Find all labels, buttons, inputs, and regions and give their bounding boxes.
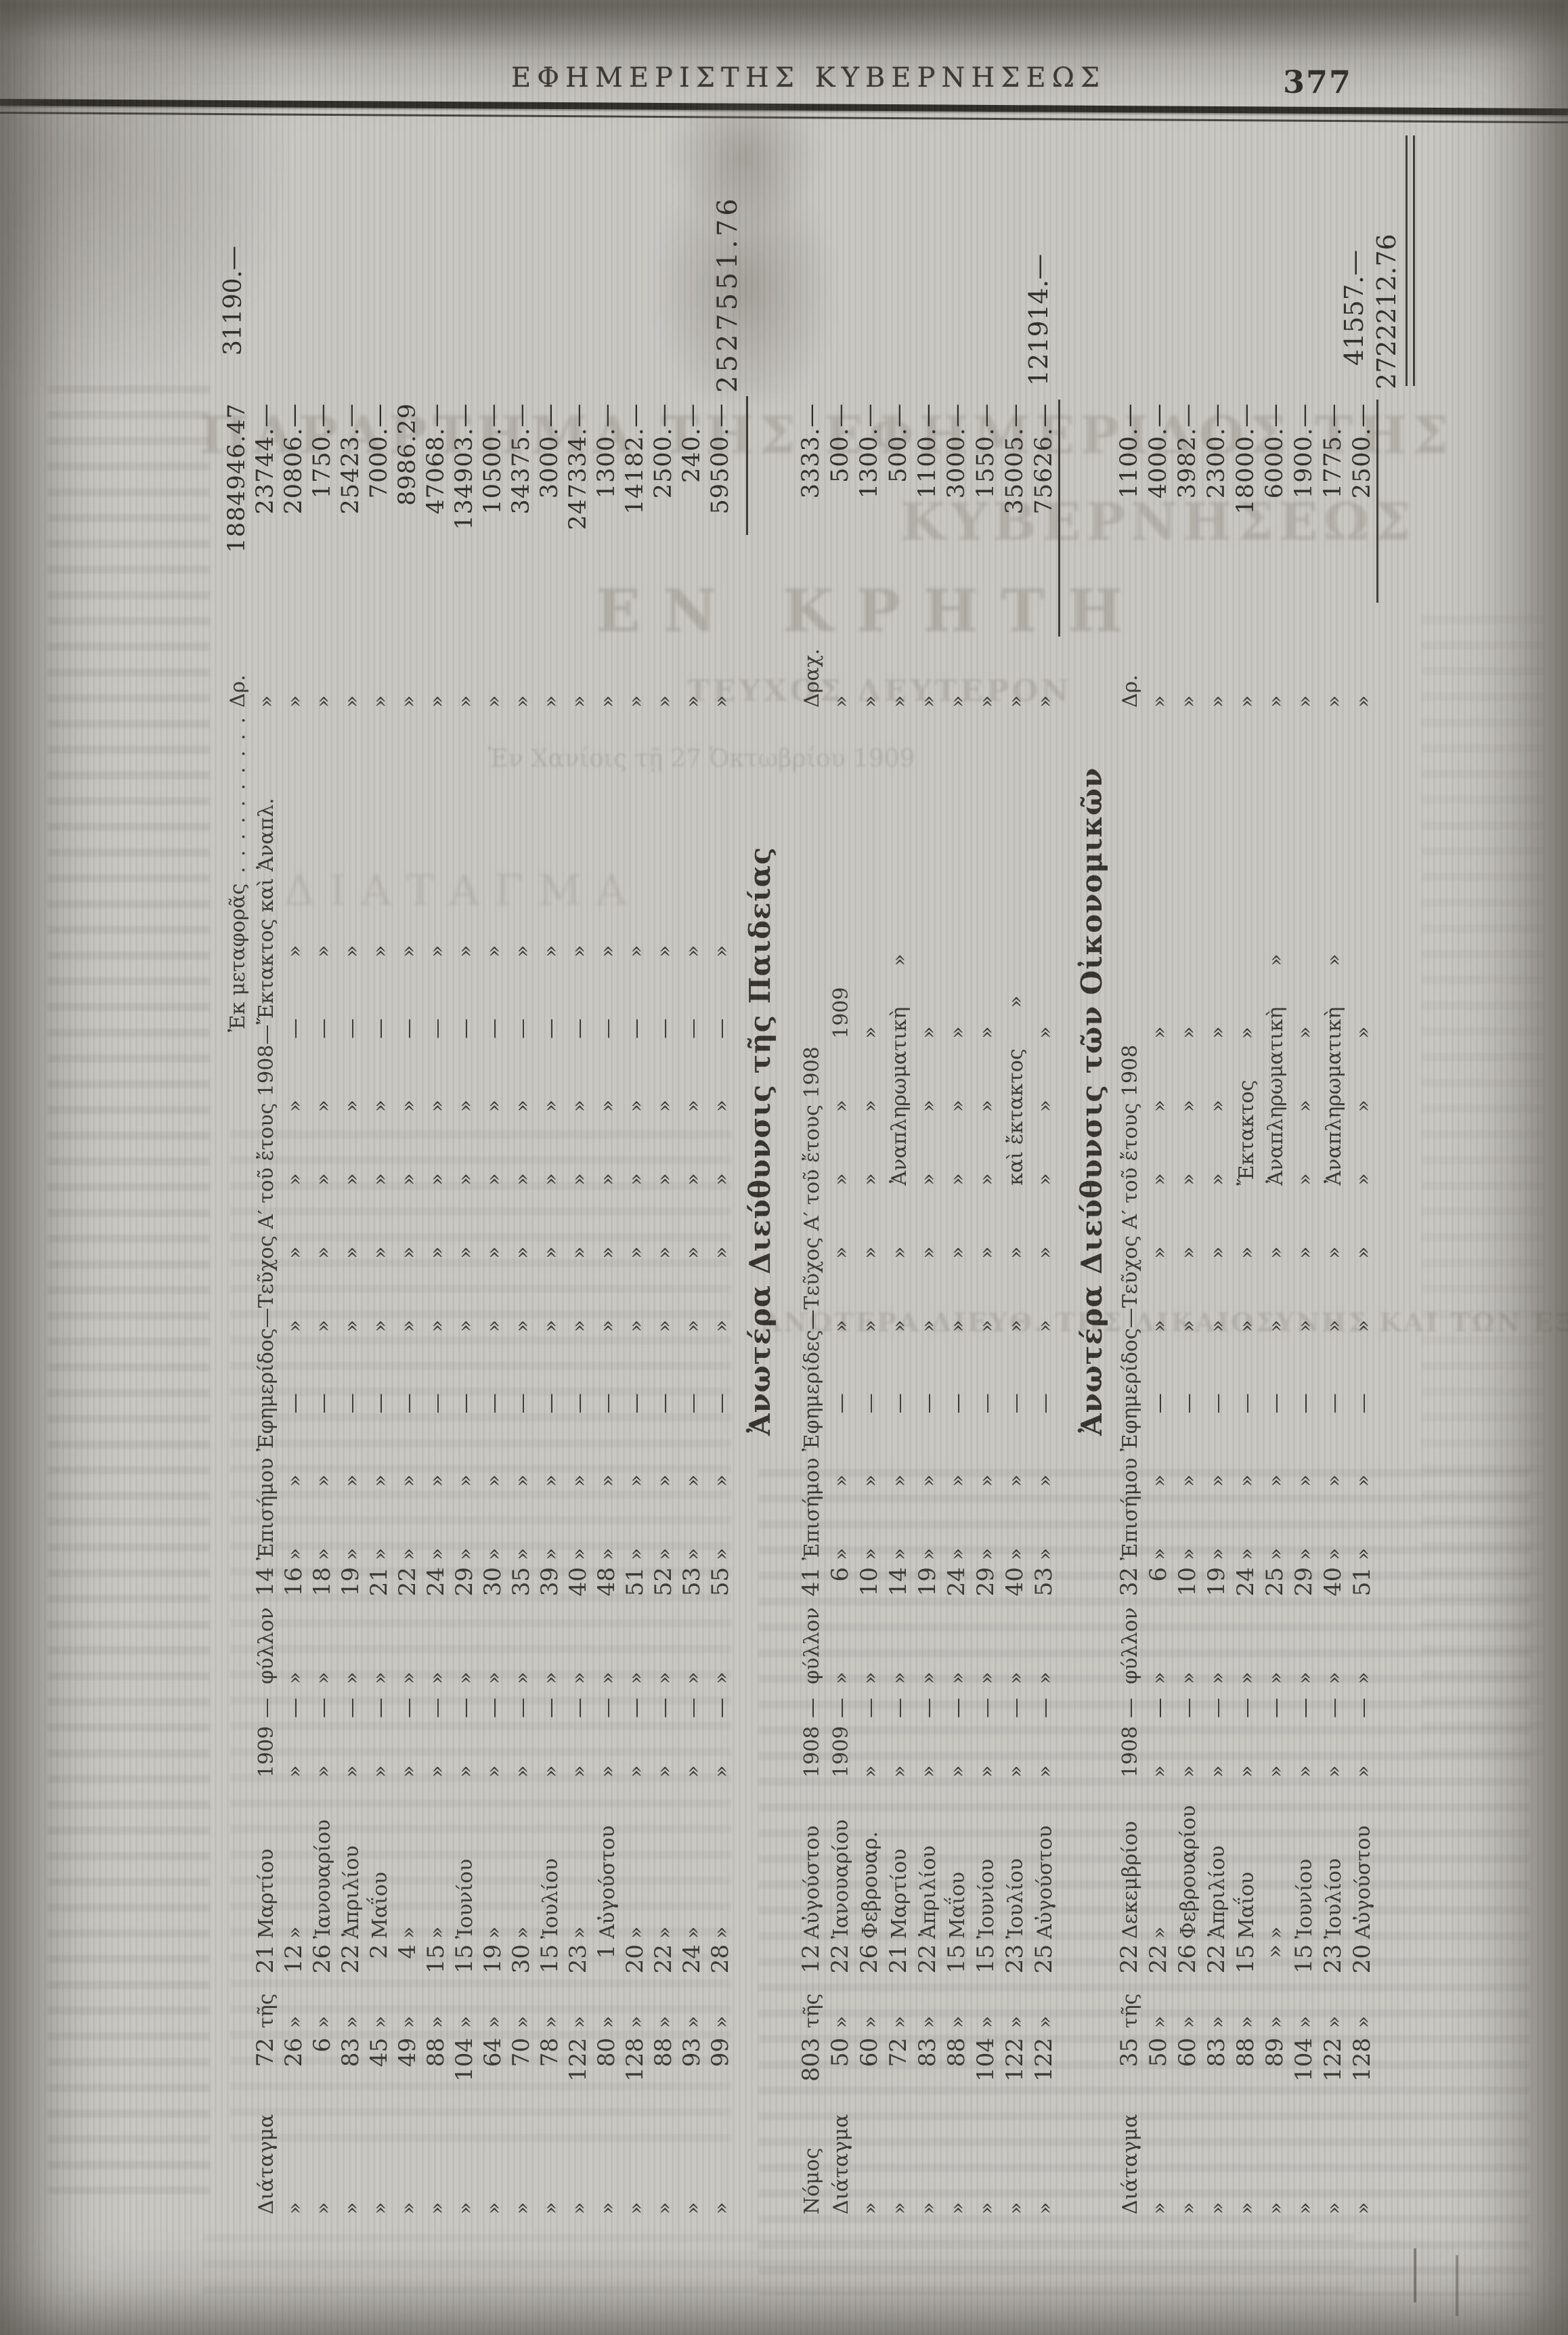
dash-cell: — xyxy=(975,1684,999,1718)
ledger-row: » 64 » 19 » » — » 30 » » — » » » » — » »… xyxy=(479,88,508,2214)
currency-cell: » xyxy=(1351,650,1375,708)
currency-cell: » xyxy=(539,650,563,708)
decree-type-cell: » xyxy=(917,2096,940,2214)
dash-cell: — xyxy=(624,1684,648,1718)
decree-number-cell: 128 xyxy=(1349,2028,1376,2096)
day-cell: 15 xyxy=(1290,1939,1317,1988)
decree-type-cell: » xyxy=(283,2096,307,2214)
dash-cell: — xyxy=(800,1684,824,1718)
amount-cell: 1300.— xyxy=(593,403,620,650)
month-cell: Αὐγούστου xyxy=(1033,1778,1057,1939)
amount-cell: 134903.— xyxy=(451,403,478,650)
issue-number-cell: 6 xyxy=(1145,1560,1172,1620)
year-cell: » xyxy=(1293,1718,1317,1778)
month-cell: Ἀπριλίου xyxy=(1206,1778,1229,1939)
dash-cell: — xyxy=(1322,1684,1346,1718)
day-cell: 24 xyxy=(678,1939,705,1988)
day-cell: 4 xyxy=(394,1939,421,1988)
amount-cell: 20806.— xyxy=(280,403,307,650)
amount-cell: 3000.— xyxy=(943,403,970,650)
day-cell: 28 xyxy=(707,1939,734,1988)
decree-type-cell: » xyxy=(710,2096,733,2214)
description-cell: Ἐπισήμου Ἐφημερίδες—Τεῦχος Α′ τοῦ ἔτους … xyxy=(800,708,824,1560)
decree-type-cell: » xyxy=(946,2096,970,2214)
month-cell: » xyxy=(510,1778,534,1939)
year-cell: » xyxy=(539,1718,563,1778)
tis-cell: » xyxy=(1293,1988,1317,2028)
fyllon-label-cell: » xyxy=(596,1620,619,1684)
table3-subtotal: 41557.— xyxy=(1339,250,1369,366)
decree-number-cell: 93 xyxy=(678,2028,705,2096)
day-cell: 23 xyxy=(1001,1939,1028,1988)
decree-type-cell: » xyxy=(888,2096,911,2214)
ledger-row: » 45 » 2 Μαΐου » — » 21 » » — » » » » — … xyxy=(366,88,394,2214)
month-cell: Ἰανουαρίου xyxy=(829,1778,853,1939)
ledger-row: » 78 » 15 Ἰουλίου » — » 39 » » — » » » »… xyxy=(536,88,565,2214)
tis-cell: τῆς xyxy=(1118,1988,1142,2028)
decree-number-cell: 122 xyxy=(1001,2028,1028,2096)
tis-cell: » xyxy=(454,1988,477,2028)
description-cell: Ἐκ μεταφορᾶς . . . . . . . . . . . . xyxy=(226,708,250,1560)
fyllon-label-cell: » xyxy=(681,1620,705,1684)
decree-type-cell: » xyxy=(653,2096,676,2214)
fyllon-label-cell: » xyxy=(946,1620,970,1684)
year-cell: » xyxy=(858,1718,882,1778)
year-cell: » xyxy=(681,1718,705,1778)
currency-cell: » xyxy=(888,650,911,708)
ledger-row: » 88 » 15 » » — » 24 » » — » » » » — » »… xyxy=(422,88,451,2214)
month-cell: » xyxy=(710,1778,733,1939)
decree-number-cell: 80 xyxy=(593,2028,620,2096)
dash-cell: — xyxy=(1148,1684,1171,1718)
fyllon-label-cell: » xyxy=(917,1620,940,1684)
issue-number-cell: 16 xyxy=(280,1560,307,1620)
ledger-row: » 122 » 23 Ἰουλίου » — » 40 » » — » » κα… xyxy=(1001,88,1030,2214)
margin-note-balance: 31190.— xyxy=(219,246,247,356)
description-cell: Ἐπισήμου Ἐφημερίδος—Τεῦχος Α′ τοῦ ἔτους … xyxy=(255,708,278,1560)
decree-type-cell: Νόμος xyxy=(800,2096,824,2214)
decree-type-cell: » xyxy=(1177,2096,1200,2214)
month-cell: Ἀπριλίου xyxy=(917,1778,940,1939)
issue-number-cell: 39 xyxy=(536,1560,563,1620)
decree-number-cell: 128 xyxy=(622,2028,649,2096)
month-cell: Μαρτίου xyxy=(888,1778,911,1939)
month-cell: Φεβρουαρίου xyxy=(1177,1778,1200,1939)
description-cell: Ἐπισήμου Ἐφημερίδος—Τεῦχος Α′ τοῦ ἔτους … xyxy=(1118,708,1142,1560)
issue-number-cell: 22 xyxy=(394,1560,421,1620)
month-cell: » xyxy=(482,1778,506,1939)
issue-number-cell: 6 xyxy=(827,1560,854,1620)
fyllon-label-cell: » xyxy=(1004,1620,1028,1684)
decree-number-cell: 64 xyxy=(479,2028,506,2096)
decree-type-cell: » xyxy=(624,2096,648,2214)
dash-cell: — xyxy=(596,1684,619,1718)
decree-number-cell: 50 xyxy=(1145,2028,1172,2096)
year-cell: » xyxy=(1148,1718,1171,1778)
amount-cell: 23744.— xyxy=(252,403,279,650)
currency-cell: » xyxy=(567,650,591,708)
description-cell: » » — » » » » — » xyxy=(653,708,676,1560)
description-cell: » » — » » » » — » xyxy=(539,708,563,1560)
dash-cell: — xyxy=(1293,1684,1317,1718)
amount-cell: 500.— xyxy=(827,403,854,650)
month-cell: Ἀπριλίου xyxy=(340,1778,364,1939)
description-cell: » » — » » » » » xyxy=(1206,708,1229,1560)
fyllon-label-cell: » xyxy=(1351,1620,1375,1684)
dash-cell: — xyxy=(1118,1684,1142,1718)
fyllon-label-cell: » xyxy=(397,1620,420,1684)
dash-cell: — xyxy=(917,1684,940,1718)
amount-cell: 1775.— xyxy=(1320,403,1347,650)
ledger-row: » 60 » 26 Φεβρουαρίου » — » 10 » » — » »… xyxy=(1174,88,1203,2214)
amount-cell: 500.— xyxy=(885,403,912,650)
ledger-row: Διάταγμα 72 τῆς 21 Μαρτίου 1909 — φύλλον… xyxy=(252,88,280,2214)
decree-number-cell: 50 xyxy=(827,2028,854,2096)
month-cell: Μαρτίου xyxy=(255,1778,278,1939)
day-cell: 15 xyxy=(422,1939,450,1988)
issue-number-cell: 24 xyxy=(1232,1560,1259,1620)
tis-cell: » xyxy=(596,1988,619,2028)
table1-sum-rule xyxy=(746,396,748,535)
fyllon-label-cell: » xyxy=(425,1620,449,1684)
decree-type-cell: » xyxy=(596,2096,619,2214)
year-cell: » xyxy=(1264,1718,1288,1778)
decree-number-cell: 104 xyxy=(972,2028,999,2096)
day-cell: 22 xyxy=(1145,1939,1172,1988)
ledger-row: » 122 » 23 Ἰουλίου » — » 40 » » — » » Ἀν… xyxy=(1320,88,1349,2214)
year-cell: » xyxy=(1322,1718,1346,1778)
decree-type-cell: » xyxy=(454,2096,477,2214)
issue-number-cell: 48 xyxy=(593,1560,620,1620)
tis-cell: » xyxy=(710,1988,733,2028)
description-cell: » » — » » Ἀναπληρωματικὴ » xyxy=(1264,708,1288,1560)
day-cell: 22 xyxy=(1116,1939,1143,1988)
day-cell: 15 xyxy=(536,1939,563,1988)
currency-cell: » xyxy=(425,650,449,708)
fyllon-label-cell: » xyxy=(888,1620,911,1684)
day-cell: 23 xyxy=(565,1939,592,1988)
year-cell: 1909 xyxy=(829,1718,853,1778)
tis-cell: » xyxy=(1004,1988,1028,2028)
tis-cell: » xyxy=(858,1988,882,2028)
year-cell: » xyxy=(1033,1718,1057,1778)
currency-cell: » xyxy=(596,650,619,708)
amount-cell: 4000.— xyxy=(1145,403,1172,650)
currency-cell: » xyxy=(368,650,392,708)
month-cell: Ἰουνίου xyxy=(1293,1778,1317,1939)
decree-number-cell: 70 xyxy=(508,2028,535,2096)
ledger-row: Διάταγμα 35 τῆς 22 Δεκεμβρίου 1908 — φύλ… xyxy=(1116,88,1145,2214)
description-cell: » » — » » » » — » xyxy=(283,708,307,1560)
issue-number-cell: 55 xyxy=(707,1560,734,1620)
issue-number-cell: 29 xyxy=(451,1560,478,1620)
tis-cell: » xyxy=(283,1988,307,2028)
currency-cell: Δρ. xyxy=(226,650,250,708)
amount-cell: 1884946.47 xyxy=(223,403,251,650)
ledger-row: » 88 » 15 Μαΐου » — » 24 » » — » » Ἔκτακ… xyxy=(1232,88,1261,2214)
issue-number-cell: 14 xyxy=(885,1560,912,1620)
decree-number-cell: 35 xyxy=(1116,2028,1143,2096)
month-cell: » xyxy=(397,1778,420,1939)
description-cell: » » — » » » » — » xyxy=(596,708,619,1560)
day-cell: 20 xyxy=(622,1939,649,1988)
dash-cell: — xyxy=(454,1684,477,1718)
decree-type-cell: » xyxy=(510,2096,534,2214)
decree-number-cell: 99 xyxy=(707,2028,734,2096)
currency-cell: » xyxy=(624,650,648,708)
description-cell: » » — » » » » — » xyxy=(624,708,648,1560)
ghost-paragraph-left-margin xyxy=(47,379,210,2194)
tis-cell: » xyxy=(1322,1988,1346,2028)
year-cell: » xyxy=(567,1718,591,1778)
month-cell: Μαΐου xyxy=(946,1778,970,1939)
day-cell: 23 xyxy=(1320,1939,1347,1988)
fyllon-label-cell: » xyxy=(1177,1620,1200,1684)
amount-cell: 47068.— xyxy=(422,403,450,650)
dash-cell: — xyxy=(1235,1684,1259,1718)
decree-number-cell: 88 xyxy=(422,2028,450,2096)
issue-number-cell: 19 xyxy=(337,1560,364,1620)
month-cell: Ἰουνίου xyxy=(975,1778,999,1939)
amount-cell: 1100.— xyxy=(1116,403,1143,650)
amount-cell: 6000.— xyxy=(1261,403,1288,650)
fyllon-label-cell: » xyxy=(368,1620,392,1684)
amount-cell: 75626.— xyxy=(1030,403,1058,650)
decree-number-cell: 60 xyxy=(856,2028,883,2096)
fyllon-label-cell: φύλλον xyxy=(1118,1620,1142,1684)
currency-cell: Δρ. xyxy=(1118,650,1142,708)
ledger-row: » 83 » 22 Ἀπριλίου » — » 19 » » — » » » … xyxy=(337,88,366,2214)
ledger-row: » 104 » 15 Ἰουνίου » — » 29 » » — » » » … xyxy=(972,88,1001,2214)
amount-cell: 14182.— xyxy=(622,403,649,650)
fyllon-label-cell: » xyxy=(1264,1620,1288,1684)
dash-cell: — xyxy=(1206,1684,1229,1718)
year-cell: » xyxy=(283,1718,307,1778)
tis-cell: » xyxy=(975,1988,999,2028)
currency-cell: » xyxy=(1177,650,1200,708)
day-cell: 1 xyxy=(593,1939,620,1988)
day-cell: 26 xyxy=(856,1939,883,1988)
issue-number-cell: 35 xyxy=(508,1560,535,1620)
decree-type-cell: » xyxy=(397,2096,420,2214)
decree-type-cell: » xyxy=(1004,2096,1028,2214)
tis-cell: » xyxy=(1148,1988,1171,2028)
issue-number-cell: 40 xyxy=(1320,1560,1347,1620)
decree-type-cell: » xyxy=(1033,2096,1057,2214)
day-cell: 21 xyxy=(252,1939,279,1988)
fyllon-label-cell: » xyxy=(567,1620,591,1684)
issue-number-cell: 32 xyxy=(1116,1560,1143,1620)
description-cell: » » — » » » » » xyxy=(946,708,970,1560)
decree-number-cell: 122 xyxy=(1320,2028,1347,2096)
ledger-row: » 49 » 4 » » — » 22 » » — » » » » — » » … xyxy=(394,88,422,2214)
dash-cell: — xyxy=(1264,1684,1288,1718)
tis-cell: » xyxy=(829,1988,853,2028)
issue-number-cell: 24 xyxy=(422,1560,450,1620)
issue-number-cell: 24 xyxy=(943,1560,970,1620)
year-cell: » xyxy=(311,1718,335,1778)
tis-cell: » xyxy=(681,1988,705,2028)
month-cell: » xyxy=(1264,1778,1288,1939)
description-cell: » » — » » » » — » xyxy=(710,708,733,1560)
ledger-row: » 83 » 22 Ἀπριλίου » — » 19 » » — » » » … xyxy=(1203,88,1232,2214)
fyllon-label-cell: » xyxy=(653,1620,676,1684)
amount-cell: 1750.— xyxy=(309,403,336,650)
description-cell: » » — » » » » — » xyxy=(510,708,534,1560)
day-cell: 30 xyxy=(508,1939,535,1988)
year-cell: » xyxy=(1351,1718,1375,1778)
ledger-row: » 104 » 15 Ἰουνίου » — » 29 » » — » » » … xyxy=(1290,88,1320,2214)
description-cell: » » — » » » » — » xyxy=(482,708,506,1560)
decree-number-cell: 72 xyxy=(252,2028,279,2096)
year-cell: » xyxy=(1206,1718,1229,1778)
description-cell: » » — » » » » » xyxy=(1177,708,1200,1560)
currency-cell: » xyxy=(917,650,940,708)
table2-total: 121914.— xyxy=(1024,254,1053,386)
day-cell: 22 xyxy=(1203,1939,1230,1988)
fyllon-label-cell: » xyxy=(1322,1620,1346,1684)
description-cell: » » — » » » » — » xyxy=(681,708,705,1560)
issue-number-cell: 52 xyxy=(650,1560,677,1620)
currency-cell: » xyxy=(1206,650,1229,708)
scan-noise-top xyxy=(0,0,1568,54)
amount-cell: 2300.— xyxy=(1203,403,1230,650)
day-cell: » xyxy=(1261,1939,1288,1988)
issue-number-cell: 53 xyxy=(678,1560,705,1620)
year-cell: » xyxy=(653,1718,676,1778)
issue-number-cell: 14 xyxy=(252,1560,279,1620)
day-cell: 15 xyxy=(1232,1939,1259,1988)
year-cell: » xyxy=(425,1718,449,1778)
ledger-row: Διάταγμα 50 » 22 Ἰανουαρίου 1909 — » 6 »… xyxy=(827,88,856,2214)
description-cell: » » — » » » » 1909 xyxy=(829,708,853,1560)
tis-cell: τῆς xyxy=(255,1988,278,2028)
dash-cell: — xyxy=(1033,1684,1057,1718)
ledger-row: » 50 » 22 » » — » 6 » » — » » » » » » 40… xyxy=(1145,88,1174,2214)
amount-cell: 3333.— xyxy=(798,403,825,650)
fyllon-label-cell: » xyxy=(311,1620,335,1684)
currency-cell: » xyxy=(340,650,364,708)
currency-cell: » xyxy=(1004,650,1028,708)
currency-cell: » xyxy=(1033,650,1057,708)
tis-cell: τῆς xyxy=(800,1988,824,2028)
currency-cell: » xyxy=(1293,650,1317,708)
description-cell: » » — » » καὶ ἔκτακτος » xyxy=(1004,708,1028,1560)
day-cell: 2 xyxy=(366,1939,393,1988)
fyllon-label-cell: » xyxy=(454,1620,477,1684)
dash-cell: — xyxy=(340,1684,364,1718)
dash-cell: — xyxy=(510,1684,534,1718)
month-cell: » xyxy=(624,1778,648,1939)
dash-cell: — xyxy=(710,1684,733,1718)
ledger-row: » 80 » 1 Αὐγούστου » — » 48 » » — » » » … xyxy=(593,88,622,2214)
day-cell: 12 xyxy=(798,1939,825,1988)
day-cell: 25 xyxy=(1030,1939,1058,1988)
month-cell: Φεβρουαρ. xyxy=(858,1778,882,1939)
gazette-scan-page: ΕΦΗΜΕΡΙΣΤΗΣ ΚΥΒΕΡΝΗΣΕΩΣ 377 ΠΑΡΑΡΤΗΜΑ ΤΗ… xyxy=(0,0,1568,2335)
day-cell: 20 xyxy=(1349,1939,1376,1988)
year-cell: » xyxy=(1004,1718,1028,1778)
dash-cell: — xyxy=(539,1684,563,1718)
decree-number-cell: 88 xyxy=(943,2028,970,2096)
ghost-paragraph-bottom xyxy=(203,2228,1354,2302)
table2-sum-rule xyxy=(1058,400,1060,637)
year-cell: » xyxy=(1235,1718,1259,1778)
table1-total: 2527551.76 xyxy=(712,195,743,393)
issue-number-cell: 29 xyxy=(972,1560,999,1620)
tis-cell: » xyxy=(1206,1988,1229,2028)
dash-cell: — xyxy=(311,1684,335,1718)
dash-cell: — xyxy=(681,1684,705,1718)
day-cell: 26 xyxy=(309,1939,336,1988)
ledger-row: » 60 » 26 Φεβρουαρ. » — » 10 » » — » » »… xyxy=(856,88,885,2214)
year-cell: » xyxy=(482,1718,506,1778)
tis-cell: » xyxy=(1351,1988,1375,2028)
currency-cell: » xyxy=(482,650,506,708)
day-cell: 15 xyxy=(972,1939,999,1988)
ledger-row: » 104 » 15 Ἰουνίου » — » 29 » » — » » » … xyxy=(451,88,479,2214)
issue-number-cell: 29 xyxy=(1290,1560,1317,1620)
currency-cell: » xyxy=(946,650,970,708)
tis-cell: » xyxy=(368,1988,392,2028)
amount-cell: 35005.— xyxy=(1001,403,1028,650)
scan-mark xyxy=(1414,2248,1416,2302)
description-cell: » » — » » » » — » xyxy=(425,708,449,1560)
month-cell: Μαΐου xyxy=(368,1778,392,1939)
currency-cell: » xyxy=(454,650,477,708)
tis-cell: » xyxy=(397,1988,420,2028)
dash-cell: — xyxy=(397,1684,420,1718)
currency-cell: » xyxy=(1148,650,1171,708)
month-cell: Αὐγούστου xyxy=(800,1778,824,1939)
fyllon-label-cell: » xyxy=(858,1620,882,1684)
ledger-row: » 26 » 12 » » — » 16 » » — » » » » — » »… xyxy=(280,88,309,2214)
issue-number-cell: 51 xyxy=(622,1560,649,1620)
ledger-table-paideia: Νόμος 803 τῆς 12 Αὐγούστου 1908 — φύλλον… xyxy=(798,88,1068,2214)
decree-number-cell: 104 xyxy=(451,2028,478,2096)
currency-cell: » xyxy=(311,650,335,708)
ledger-table-carried-forward: Ἐκ μεταφορᾶς . . . . . . . . . . . . Δρ.… xyxy=(223,88,758,2214)
year-cell: 1909 xyxy=(255,1718,278,1778)
amount-cell: 240.— xyxy=(678,403,705,650)
dash-cell: — xyxy=(653,1684,676,1718)
month-cell: Μαΐου xyxy=(1235,1778,1259,1939)
tis-cell: » xyxy=(539,1988,563,2028)
decree-number-cell: 83 xyxy=(337,2028,364,2096)
currency-cell: » xyxy=(1322,650,1346,708)
dash-cell: — xyxy=(368,1684,392,1718)
amount-cell: 59500.— xyxy=(707,403,734,650)
month-cell: Αὐγούστου xyxy=(596,1778,619,1939)
amount-cell: 25423.— xyxy=(337,403,364,650)
issue-number-cell: 10 xyxy=(856,1560,883,1620)
day-cell: 19 xyxy=(479,1939,506,1988)
ledger-row: » 88 » 15 Μαΐου » — » 24 » » — » » » » »… xyxy=(943,88,972,2214)
decree-type-cell: » xyxy=(539,2096,563,2214)
tis-cell: » xyxy=(482,1988,506,2028)
section-heading-paideia: Ἀνωτέρα Διεύθυνσις τῆς Παιδείας xyxy=(743,935,787,1436)
day-cell: 22 xyxy=(650,1939,677,1988)
decree-type-cell: » xyxy=(1148,2096,1171,2214)
table3-sum-rule xyxy=(1376,400,1378,603)
month-cell: » xyxy=(283,1778,307,1939)
amount-cell: 247334.— xyxy=(565,403,592,650)
tis-cell: » xyxy=(624,1988,648,2028)
currency-cell: » xyxy=(1264,650,1288,708)
month-cell: Ἰουλίου xyxy=(539,1778,563,1939)
fyllon-label-cell: » xyxy=(624,1620,648,1684)
decree-number-cell: 122 xyxy=(1030,2028,1058,2096)
